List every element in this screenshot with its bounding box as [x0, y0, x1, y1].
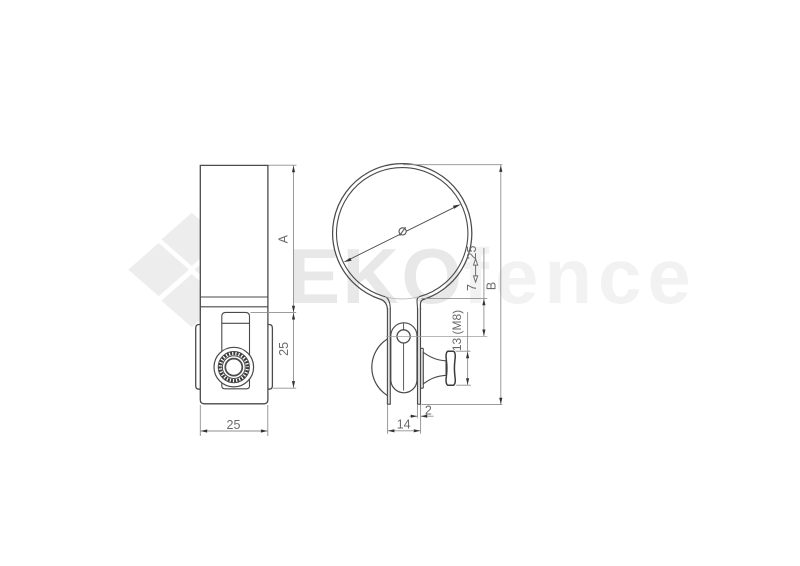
svg-text:25: 25 [227, 418, 241, 432]
svg-text:2: 2 [425, 403, 432, 417]
svg-text:7: 7 [465, 284, 479, 291]
svg-text:14: 14 [397, 418, 411, 432]
svg-text:A: A [277, 234, 291, 243]
svg-text:25: 25 [465, 246, 479, 260]
svg-text:B: B [484, 282, 498, 290]
svg-text:25: 25 [277, 342, 291, 356]
svg-text:fence: fence [463, 232, 697, 320]
svg-text:EKO: EKO [288, 232, 465, 320]
svg-text:13 (M8): 13 (M8) [450, 310, 464, 351]
